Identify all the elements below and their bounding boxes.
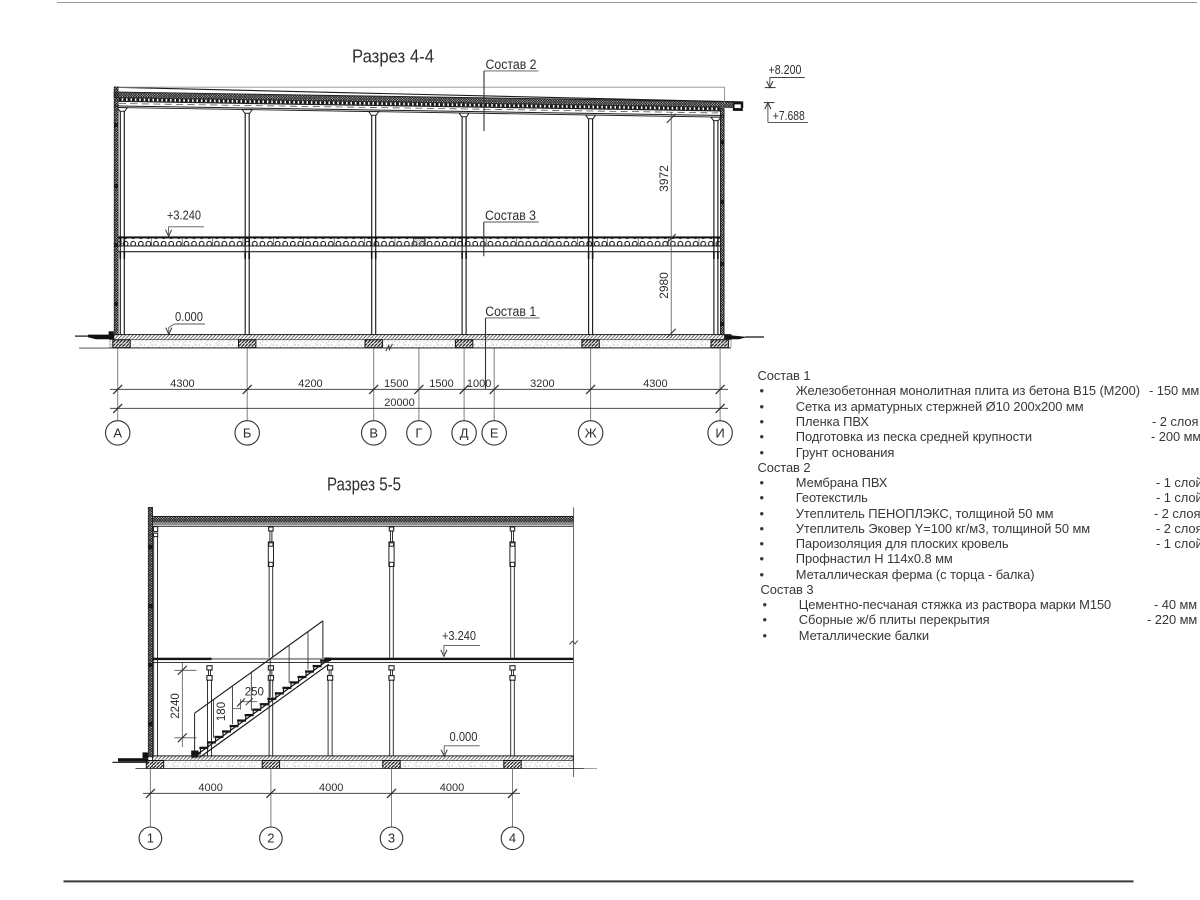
svg-text:Разрез 4-4: Разрез 4-4 <box>352 47 434 67</box>
svg-text:3972: 3972 <box>657 165 671 192</box>
svg-text:+3.240: +3.240 <box>442 629 476 643</box>
svg-text:2980: 2980 <box>657 272 671 299</box>
svg-text:+8.200: +8.200 <box>769 63 802 77</box>
svg-text:0.000: 0.000 <box>450 730 478 744</box>
svg-text:+3.240: +3.240 <box>167 209 201 223</box>
svg-text:20000: 20000 <box>384 397 415 409</box>
svg-text:1000: 1000 <box>467 378 491 390</box>
svg-text:4300: 4300 <box>170 378 194 390</box>
svg-text:Е: Е <box>490 426 499 441</box>
svg-text:1: 1 <box>147 831 154 846</box>
svg-text:Разрез 5-5: Разрез 5-5 <box>327 474 401 494</box>
svg-text:Б: Б <box>243 426 252 441</box>
svg-text:Состав 3: Состав 3 <box>485 208 536 223</box>
svg-text:Ж: Ж <box>585 426 597 441</box>
svg-text:Состав 2: Состав 2 <box>486 57 537 72</box>
svg-text:Состав 1: Состав 1 <box>485 304 536 319</box>
svg-text:4000: 4000 <box>198 782 222 794</box>
svg-text:1500: 1500 <box>429 378 453 390</box>
svg-text:А: А <box>113 426 122 441</box>
svg-text:4000: 4000 <box>440 782 464 794</box>
svg-text:250: 250 <box>245 686 264 698</box>
svg-text:В: В <box>369 426 378 441</box>
svg-text:4200: 4200 <box>298 378 322 390</box>
svg-text:Д: Д <box>460 426 469 441</box>
svg-text:2240: 2240 <box>170 693 182 719</box>
svg-text:+7.688: +7.688 <box>773 109 805 123</box>
svg-text:1500: 1500 <box>384 378 408 390</box>
svg-text:3200: 3200 <box>530 378 554 390</box>
svg-text:И: И <box>715 426 724 441</box>
svg-text:0.000: 0.000 <box>175 310 203 324</box>
svg-text:2: 2 <box>267 831 274 846</box>
svg-text:4300: 4300 <box>643 378 667 390</box>
svg-text:Г: Г <box>415 426 422 441</box>
svg-text:180: 180 <box>216 702 228 721</box>
svg-text:4000: 4000 <box>319 782 343 794</box>
svg-text:4: 4 <box>509 831 516 846</box>
svg-text:3: 3 <box>388 831 395 846</box>
